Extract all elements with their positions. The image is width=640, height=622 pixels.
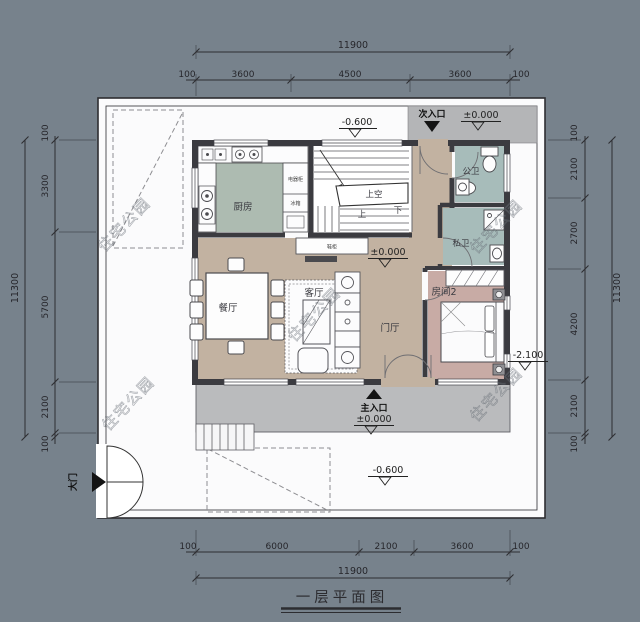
bedroom2-label: 房间2: [431, 286, 456, 298]
stair-down-label: 下: [394, 206, 403, 216]
bedroom-furniture: [441, 289, 505, 375]
level-value: ±0.000: [463, 110, 498, 121]
window: [224, 379, 288, 385]
bed: [441, 302, 504, 362]
level-value: -2.100: [513, 350, 544, 361]
dim-top-seg2: 4500: [339, 70, 362, 80]
dim-left-overall: 11300: [10, 273, 21, 303]
understair-cabinet: 鞋柜: [296, 238, 368, 254]
dim-right-seg4: 2100: [570, 394, 580, 417]
dim-right-seg2: 2700: [570, 221, 580, 244]
gate-label: 大门: [67, 473, 79, 491]
armchair: [298, 348, 328, 373]
nightstand: [493, 289, 505, 300]
window: [214, 140, 268, 146]
dim-top-seg0: 100: [178, 70, 195, 80]
dim-bottom-overall: 11900: [338, 566, 368, 577]
window: [322, 140, 402, 146]
dim-left-seg0: 100: [41, 124, 51, 141]
main-entrance-label: 主入口: [360, 402, 387, 414]
dim-right-seg3: 4200: [570, 312, 580, 335]
dim-left-seg4: 100: [41, 435, 51, 452]
dim-right-seg1: 2100: [570, 157, 580, 180]
dim-right-overall: 11300: [612, 273, 623, 303]
level-value: ±0.000: [356, 414, 391, 425]
dining-label: 餐厅: [218, 302, 238, 314]
dim-left-seg3: 2100: [41, 395, 51, 418]
appliance-cabinet-label: 电器柜: [288, 176, 303, 183]
washer-icon: [456, 179, 469, 195]
dimension-right: 100 2100 2700 4200 2100 100 11300: [548, 124, 623, 452]
drawing-title: 一层平面图: [281, 590, 401, 613]
foyer-label: 门厅: [380, 322, 400, 334]
tv-cabinet: [305, 256, 337, 262]
window: [438, 379, 498, 385]
dim-top-seg1: 3600: [232, 70, 255, 80]
dim-top-seg4: 100: [512, 70, 529, 80]
floor-plan-page: 上空 上 下: [0, 0, 640, 622]
dim-bottom-seg4: 100: [512, 542, 529, 552]
page-title: 一层平面图: [296, 590, 389, 606]
dim-bottom-seg2: 2100: [375, 542, 398, 552]
small-basin-icon: [490, 245, 504, 262]
understair-cabinet-label: 鞋柜: [327, 244, 337, 251]
dim-bottom-seg1: 6000: [266, 542, 289, 552]
kitchen-sink: [232, 147, 262, 162]
window: [192, 168, 198, 208]
stair-void-label: 上空: [365, 189, 382, 200]
sofa: [335, 272, 360, 368]
level-value: -0.600: [373, 465, 404, 476]
secondary-entrance-label: 次入口: [418, 108, 445, 120]
floor-plan-drawing: 上空 上 下: [0, 0, 640, 622]
dim-left-seg1: 3300: [41, 174, 51, 197]
dim-top-seg3: 3600: [449, 70, 472, 80]
dim-left-seg2: 5700: [41, 295, 51, 318]
gate: 大门: [67, 444, 143, 518]
stair-up-label: 上: [358, 210, 367, 220]
stove-icon: [199, 186, 215, 224]
level-value: -0.600: [342, 117, 373, 128]
level-value: ±0.000: [370, 247, 405, 258]
dim-bottom-seg0: 100: [179, 542, 196, 552]
dim-bottom-seg3: 3600: [451, 542, 474, 552]
dim-right-seg0: 100: [570, 124, 580, 141]
dim-top-overall: 11900: [338, 40, 368, 51]
dimension-left: 100 3300 5700 2100 100 11300: [10, 124, 96, 452]
dim-right-seg5: 100: [570, 435, 580, 452]
window: [296, 379, 364, 385]
fridge-label: 冰箱: [290, 200, 300, 207]
window: [504, 154, 510, 192]
kitchen-label: 厨房: [233, 201, 252, 213]
shared-bath-label: 公卫: [462, 167, 480, 177]
wardrobe: [446, 270, 504, 286]
terrace-steps: [196, 424, 254, 450]
dimension-top: 11900 100 3600 4500 3600 100: [178, 40, 529, 96]
dimension-bottom: 100 6000 2100 3600 100 11900: [179, 530, 529, 585]
